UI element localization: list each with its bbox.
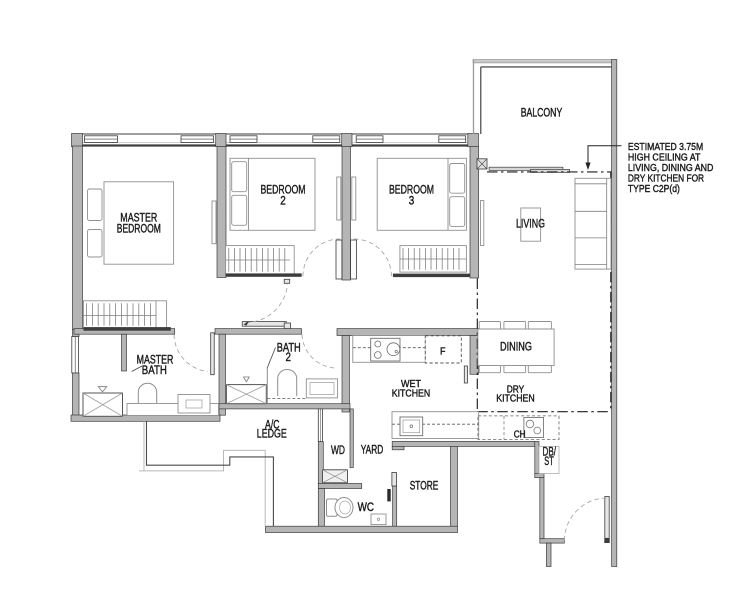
svg-text:KITCHEN: KITCHEN xyxy=(496,394,535,405)
svg-text:ESTIMATED 3.75M: ESTIMATED 3.75M xyxy=(628,142,703,153)
svg-text:2: 2 xyxy=(280,195,286,207)
svg-text:TYPE C2P(d): TYPE C2P(d) xyxy=(628,184,680,195)
svg-text:BATH: BATH xyxy=(142,365,167,377)
svg-text:2: 2 xyxy=(285,352,291,364)
svg-text:DRY KITCHEN FOR: DRY KITCHEN FOR xyxy=(628,173,704,184)
svg-text:BEDROOM: BEDROOM xyxy=(117,224,161,236)
svg-text:WC: WC xyxy=(358,502,374,514)
svg-text:LEDGE: LEDGE xyxy=(257,429,287,441)
svg-text:WD: WD xyxy=(331,445,345,457)
svg-text:DINING: DINING xyxy=(500,342,532,354)
svg-text:HIGH CEILING AT: HIGH CEILING AT xyxy=(628,152,701,163)
svg-text:LIVING, DINING AND: LIVING, DINING AND xyxy=(628,163,714,174)
svg-text:YARD: YARD xyxy=(361,444,384,456)
svg-text:STORE: STORE xyxy=(410,481,439,493)
svg-text:KITCHEN: KITCHEN xyxy=(392,389,431,400)
svg-text:BALCONY: BALCONY xyxy=(521,108,563,120)
svg-text:ST: ST xyxy=(544,456,554,468)
svg-text:LIVING: LIVING xyxy=(516,219,545,231)
svg-text:F: F xyxy=(440,346,446,358)
svg-text:3: 3 xyxy=(409,195,415,207)
svg-text:CH: CH xyxy=(514,429,526,440)
